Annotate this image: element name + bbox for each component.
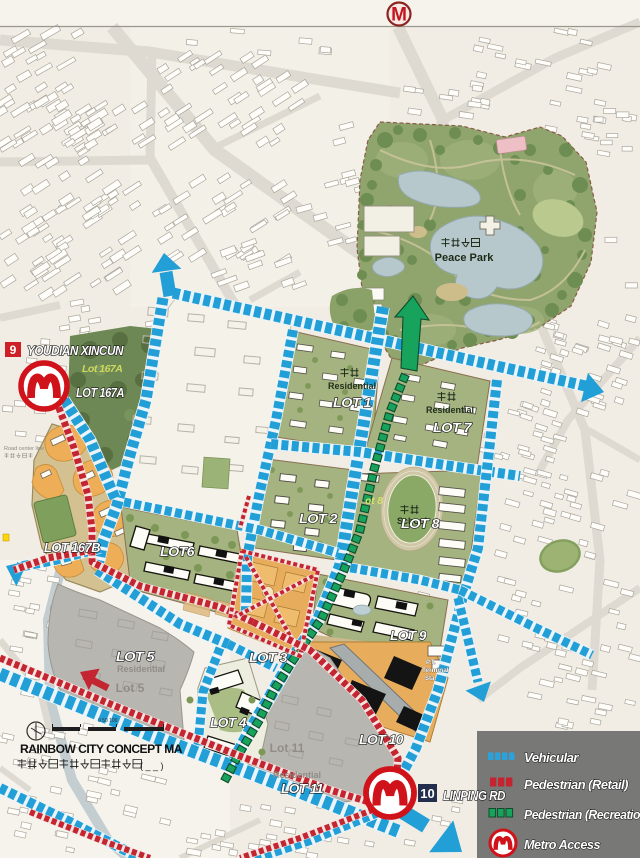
- svg-text:P.T.: P.T.: [426, 660, 436, 666]
- svg-text:LOT 2: LOT 2: [299, 511, 338, 526]
- svg-text:RAINBOW CITY CONCEPT MA: RAINBOW CITY CONCEPT MA: [20, 744, 182, 756]
- svg-text:Metro Access: Metro Access: [524, 837, 600, 852]
- svg-text:Lot 11: Lot 11: [270, 741, 305, 755]
- svg-text:Residential: Residential: [117, 664, 165, 674]
- svg-text:Road center line: Road center line: [4, 446, 44, 452]
- svg-text:Pedestrian (Retail): Pedestrian (Retail): [524, 777, 628, 792]
- svg-text:Lot 5: Lot 5: [116, 681, 145, 695]
- svg-text:ot 8: ot 8: [365, 496, 383, 507]
- svg-text:LOT 7: LOT 7: [433, 420, 472, 435]
- svg-text:LOT 1: LOT 1: [333, 395, 371, 410]
- svg-text:LOT 167B: LOT 167B: [44, 540, 100, 555]
- svg-text:Peace Park: Peace Park: [435, 252, 495, 264]
- svg-text:Vehicular: Vehicular: [524, 750, 579, 765]
- svg-text:10: 10: [420, 786, 434, 801]
- svg-text:LOT 5: LOT 5: [116, 649, 155, 664]
- svg-text:LOT 3: LOT 3: [249, 650, 288, 665]
- svg-text:Residential: Residential: [328, 381, 376, 391]
- svg-text:LOT6: LOT6: [160, 544, 195, 559]
- svg-text:0 50 100: 0 50 100: [98, 718, 118, 724]
- svg-text:Residential: Residential: [426, 405, 474, 415]
- svg-text:9: 9: [10, 343, 17, 357]
- svg-text:Terminal: Terminal: [422, 667, 449, 674]
- svg-text:LOT 167A: LOT 167A: [76, 385, 124, 400]
- svg-text:LOT 4: LOT 4: [210, 715, 247, 730]
- svg-text:Lot 167A: Lot 167A: [82, 363, 122, 375]
- svg-text:Sta.: Sta.: [425, 676, 436, 682]
- svg-text:LOT 9: LOT 9: [390, 628, 427, 643]
- svg-text:LOT 8: LOT 8: [401, 516, 440, 531]
- svg-text:YOUDIAN XINCUN: YOUDIAN XINCUN: [27, 344, 124, 358]
- svg-text:Pedestrian (Recreatio: Pedestrian (Recreatio: [524, 807, 640, 822]
- svg-text:LOT 10: LOT 10: [359, 732, 404, 747]
- svg-text:LOT 11: LOT 11: [281, 781, 323, 796]
- svg-text:M: M: [391, 5, 407, 26]
- svg-text:Residential: Residential: [273, 770, 321, 780]
- svg-text:LINPING RD: LINPING RD: [443, 788, 506, 803]
- svg-text:( _ _ ): ( _ _ ): [140, 761, 164, 771]
